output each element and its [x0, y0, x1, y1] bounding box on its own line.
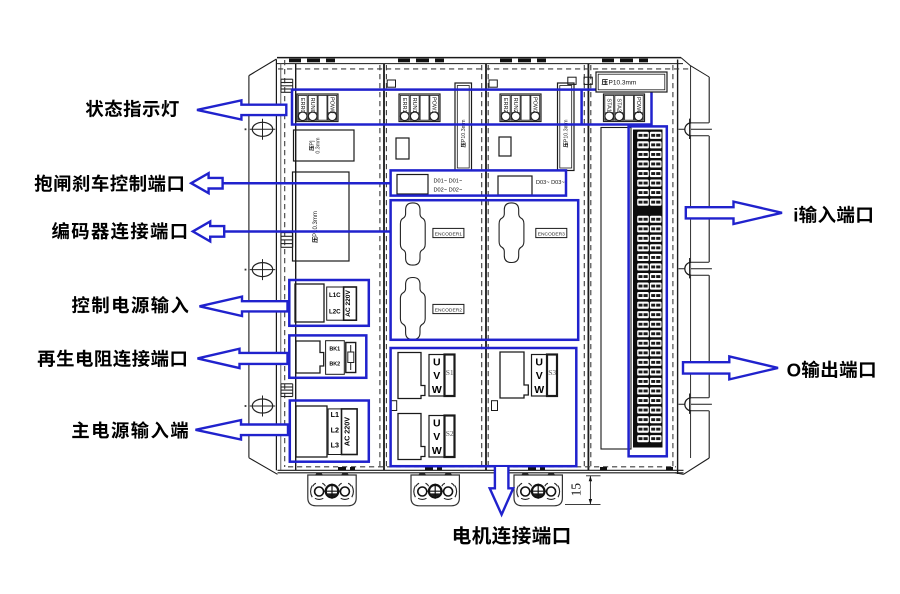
svg-text:S2: S2 [446, 429, 454, 438]
svg-text:15: 15 [568, 483, 583, 497]
svg-text:P10.3mm: P10.3mm [609, 79, 637, 86]
svg-text:W: W [432, 384, 442, 396]
svg-text:BK2: BK2 [329, 362, 340, 368]
svg-text:ENCODER2: ENCODER2 [435, 307, 462, 313]
svg-text:L2C: L2C [329, 309, 341, 316]
svg-text:ENCODER3: ENCODER3 [538, 231, 565, 237]
svg-text:W: W [534, 384, 544, 396]
svg-text:P10.3mm: P10.3mm [564, 119, 570, 142]
svg-text:V: V [536, 370, 543, 382]
svg-text:POW6: POW6 [635, 97, 641, 113]
svg-text:ERR1: ERR1 [401, 98, 407, 113]
svg-text:L1C: L1C [329, 292, 341, 299]
svg-text:STA1: STA1 [606, 98, 612, 112]
svg-text:RUN1: RUN1 [411, 98, 417, 113]
svg-text:D02~ D02~: D02~ D02~ [434, 187, 463, 193]
svg-text:POW2: POW2 [532, 97, 538, 113]
svg-text:ERR2: ERR2 [502, 98, 508, 113]
svg-text:RUN2: RUN2 [512, 98, 518, 113]
svg-text:POW0: POW0 [329, 97, 335, 113]
svg-text:AC 220V: AC 220V [343, 417, 352, 446]
svg-text:U: U [433, 417, 441, 429]
svg-text:AC 220V: AC 220V [345, 290, 352, 317]
svg-text:0.3mm: 0.3mm [316, 137, 322, 154]
svg-text:P]: P] [309, 140, 315, 146]
svg-text:POW1: POW1 [431, 97, 437, 113]
svg-text:U: U [535, 356, 543, 368]
svg-text:ERR0: ERR0 [299, 98, 305, 113]
svg-text:U: U [433, 356, 441, 368]
svg-text:L3: L3 [331, 441, 339, 450]
svg-text:S3: S3 [548, 368, 556, 377]
svg-text:ENCODER1: ENCODER1 [435, 231, 462, 237]
svg-text:L1: L1 [331, 410, 339, 419]
svg-text:D01~ D01~: D01~ D01~ [434, 178, 463, 184]
svg-text:S1: S1 [446, 368, 454, 377]
svg-text:i: i [793, 205, 798, 226]
svg-text:V: V [433, 370, 440, 382]
svg-text:V: V [433, 431, 440, 443]
svg-text:RUN0: RUN0 [309, 98, 315, 113]
svg-text:STA2: STA2 [616, 98, 622, 112]
svg-text:P10.3mm: P10.3mm [461, 119, 467, 142]
svg-text:BK1: BK1 [329, 347, 340, 353]
svg-text:L2: L2 [331, 425, 339, 434]
svg-text:W: W [432, 445, 442, 457]
svg-text:O: O [787, 359, 801, 380]
svg-text:D03~ D03~: D03~ D03~ [536, 180, 565, 186]
svg-text:P10.3mm: P10.3mm [313, 211, 319, 237]
